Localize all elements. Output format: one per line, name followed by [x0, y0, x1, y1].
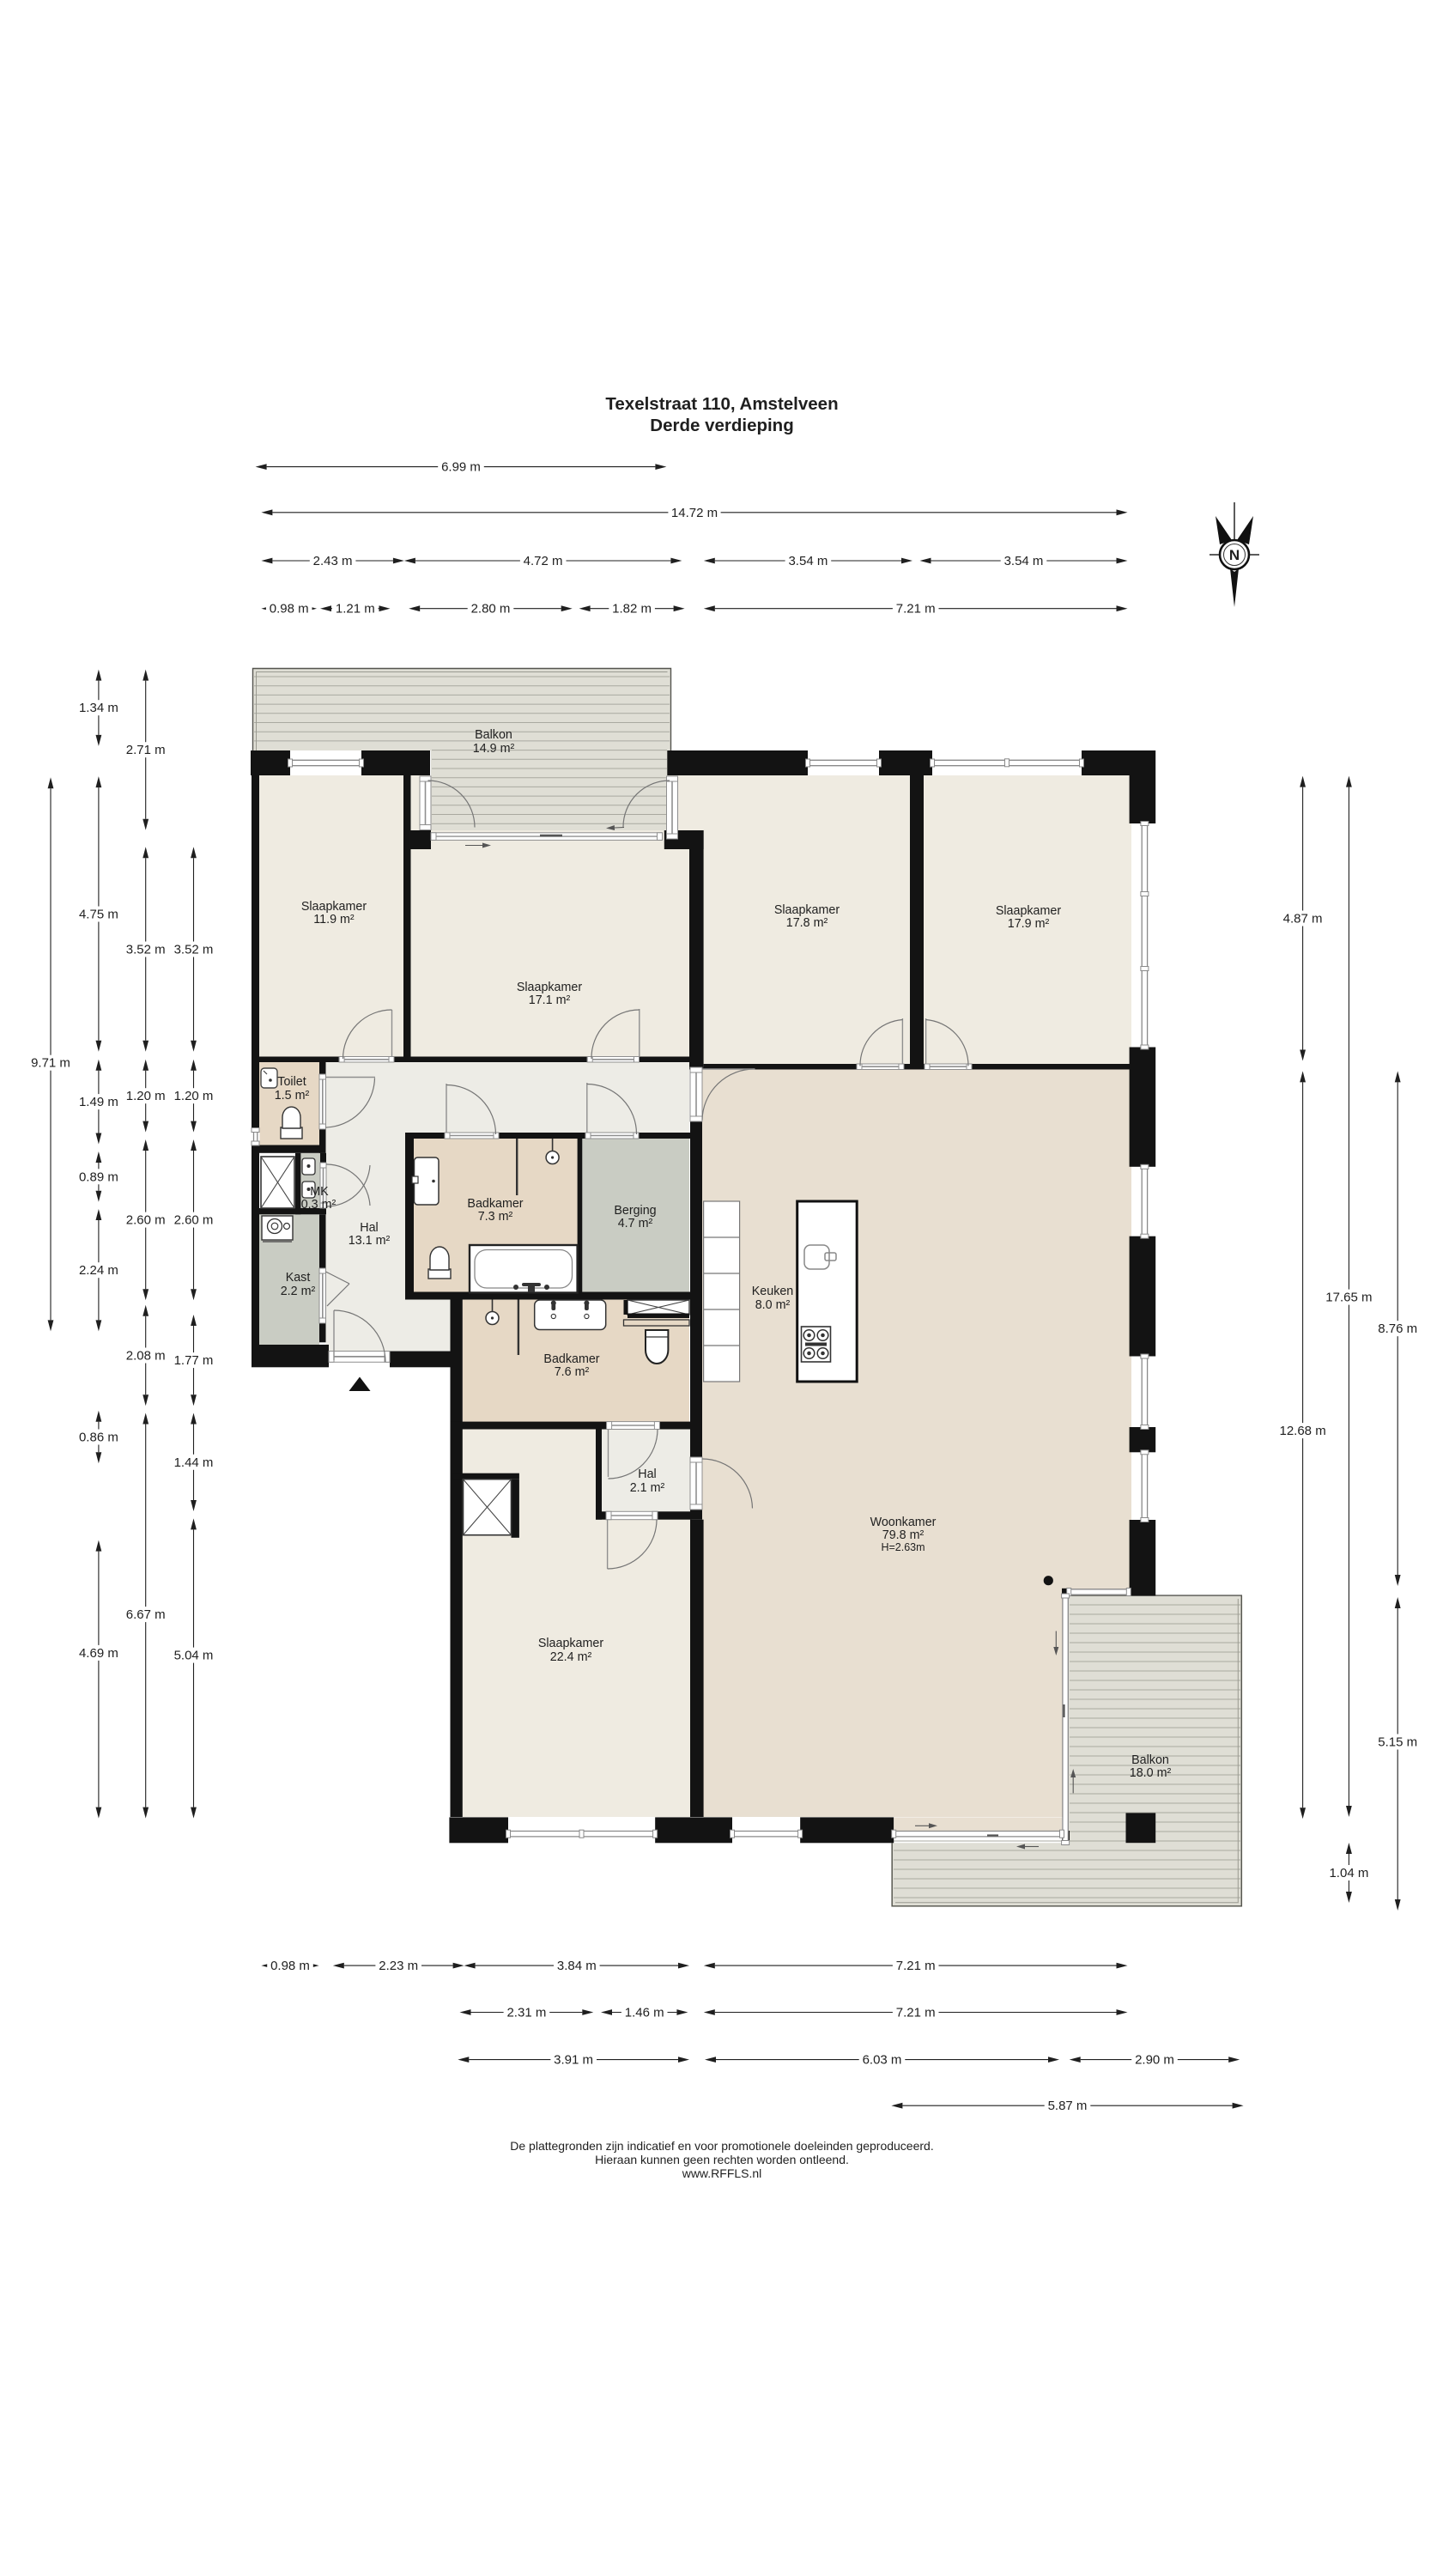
svg-text:0.98 m: 0.98 m: [270, 602, 309, 617]
svg-text:2.24 m: 2.24 m: [79, 1263, 118, 1278]
svg-text:17.9 m²: 17.9 m²: [1008, 917, 1050, 931]
svg-text:1.04 m: 1.04 m: [1329, 1866, 1368, 1880]
svg-text:N: N: [1229, 547, 1240, 563]
svg-text:1.20 m: 1.20 m: [126, 1089, 166, 1103]
svg-text:2.23 m: 2.23 m: [379, 1959, 418, 1973]
svg-text:2.31 m: 2.31 m: [506, 2006, 546, 2020]
svg-text:Toilet: Toilet: [277, 1075, 306, 1089]
svg-text:3.54 m: 3.54 m: [1004, 554, 1044, 568]
svg-text:4.87 m: 4.87 m: [1283, 912, 1323, 927]
svg-text:7.21 m: 7.21 m: [896, 1959, 936, 1973]
svg-text:4.75 m: 4.75 m: [79, 908, 118, 922]
svg-text:7.6 m²: 7.6 m²: [555, 1365, 590, 1379]
svg-text:9.71 m: 9.71 m: [31, 1056, 70, 1071]
svg-text:3.52 m: 3.52 m: [126, 943, 166, 957]
svg-text:4.7 m²: 4.7 m²: [618, 1217, 653, 1230]
svg-text:2.71 m: 2.71 m: [126, 743, 166, 757]
svg-text:7.21 m: 7.21 m: [896, 2006, 936, 2020]
svg-text:0.3 m²: 0.3 m²: [301, 1198, 336, 1212]
svg-text:5.04 m: 5.04 m: [174, 1649, 214, 1663]
svg-text:2.60 m: 2.60 m: [174, 1213, 214, 1228]
svg-text:Kast: Kast: [286, 1271, 311, 1285]
svg-text:2.43 m: 2.43 m: [313, 554, 353, 568]
svg-text:0.89 m: 0.89 m: [79, 1170, 118, 1184]
svg-text:7.21 m: 7.21 m: [896, 602, 936, 617]
svg-text:6.99 m: 6.99 m: [441, 460, 481, 475]
svg-text:Slaapkamer: Slaapkamer: [517, 981, 583, 994]
svg-text:12.68 m: 12.68 m: [1279, 1424, 1325, 1438]
svg-text:4.69 m: 4.69 m: [79, 1646, 118, 1661]
svg-text:1.46 m: 1.46 m: [625, 2006, 664, 2020]
svg-text:5.15 m: 5.15 m: [1378, 1735, 1417, 1750]
svg-text:1.77 m: 1.77 m: [174, 1353, 214, 1368]
svg-text:Balkon: Balkon: [1131, 1753, 1169, 1767]
svg-text:1.5 m²: 1.5 m²: [275, 1089, 310, 1103]
svg-text:Berging: Berging: [614, 1204, 656, 1218]
svg-text:2.1 m²: 2.1 m²: [630, 1481, 665, 1495]
svg-text:De plattegronden zijn indicati: De plattegronden zijn indicatief en voor…: [510, 2139, 933, 2153]
svg-text:7.3 m²: 7.3 m²: [478, 1210, 513, 1224]
svg-text:3.91 m: 3.91 m: [554, 2053, 593, 2068]
svg-text:H=2.63m: H=2.63m: [881, 1541, 925, 1553]
svg-text:13.1 m²: 13.1 m²: [349, 1234, 391, 1248]
svg-text:17.1 m²: 17.1 m²: [529, 993, 571, 1007]
svg-text:Badkamer: Badkamer: [543, 1352, 599, 1366]
svg-text:Slaapkamer: Slaapkamer: [996, 904, 1062, 918]
svg-text:Woonkamer: Woonkamer: [870, 1516, 937, 1529]
svg-text:Slaapkamer: Slaapkamer: [538, 1637, 604, 1650]
svg-text:2.90 m: 2.90 m: [1135, 2053, 1174, 2068]
svg-text:3.54 m: 3.54 m: [788, 554, 828, 568]
svg-text:6.67 m: 6.67 m: [126, 1607, 166, 1622]
svg-text:17.65 m: 17.65 m: [1325, 1291, 1372, 1305]
svg-text:79.8 m²: 79.8 m²: [882, 1528, 925, 1542]
svg-text:MK: MK: [310, 1185, 329, 1199]
svg-text:3.84 m: 3.84 m: [557, 1959, 597, 1973]
svg-text:8.0 m²: 8.0 m²: [755, 1298, 791, 1312]
svg-text:0.86 m: 0.86 m: [79, 1431, 118, 1445]
svg-text:1.21 m: 1.21 m: [336, 602, 375, 617]
svg-text:5.87 m: 5.87 m: [1048, 2099, 1088, 2113]
svg-text:1.20 m: 1.20 m: [174, 1089, 214, 1103]
svg-text:3.52 m: 3.52 m: [174, 943, 214, 957]
svg-text:2.80 m: 2.80 m: [471, 602, 511, 617]
svg-text:2.08 m: 2.08 m: [126, 1349, 166, 1364]
svg-text:Hieraan kunnen geen rechten wo: Hieraan kunnen geen rechten worden ontle…: [595, 2153, 849, 2166]
svg-text:0.98 m: 0.98 m: [270, 1959, 310, 1973]
svg-text:14.9 m²: 14.9 m²: [473, 742, 515, 756]
svg-text:1.82 m: 1.82 m: [612, 602, 652, 617]
svg-text:1.49 m: 1.49 m: [79, 1095, 118, 1109]
svg-text:Badkamer: Badkamer: [467, 1197, 523, 1211]
svg-text:Derde verdieping: Derde verdieping: [650, 416, 793, 435]
svg-text:Texelstraat 110, Amstelveen: Texelstraat 110, Amstelveen: [605, 394, 838, 414]
svg-text:11.9 m²: 11.9 m²: [313, 913, 355, 927]
svg-text:2.60 m: 2.60 m: [126, 1213, 166, 1228]
svg-text:8.76 m: 8.76 m: [1378, 1321, 1417, 1336]
svg-text:17.8 m²: 17.8 m²: [786, 916, 828, 930]
svg-text:18.0 m²: 18.0 m²: [1130, 1766, 1172, 1780]
svg-text:1.34 m: 1.34 m: [79, 701, 118, 715]
svg-text:Slaapkamer: Slaapkamer: [774, 903, 840, 917]
svg-text:Balkon: Balkon: [475, 728, 512, 742]
svg-text:www.RFFLS.nl: www.RFFLS.nl: [682, 2166, 762, 2180]
svg-text:Keuken: Keuken: [752, 1285, 794, 1298]
svg-text:1.44 m: 1.44 m: [174, 1455, 214, 1470]
svg-text:14.72 m: 14.72 m: [671, 506, 718, 520]
svg-text:4.72 m: 4.72 m: [524, 554, 563, 568]
svg-text:Hal: Hal: [638, 1467, 656, 1481]
svg-text:2.2 m²: 2.2 m²: [281, 1285, 316, 1298]
svg-text:Hal: Hal: [360, 1221, 378, 1235]
svg-text:Slaapkamer: Slaapkamer: [301, 900, 367, 914]
svg-text:6.03 m: 6.03 m: [863, 2053, 902, 2068]
svg-text:22.4 m²: 22.4 m²: [550, 1650, 592, 1664]
